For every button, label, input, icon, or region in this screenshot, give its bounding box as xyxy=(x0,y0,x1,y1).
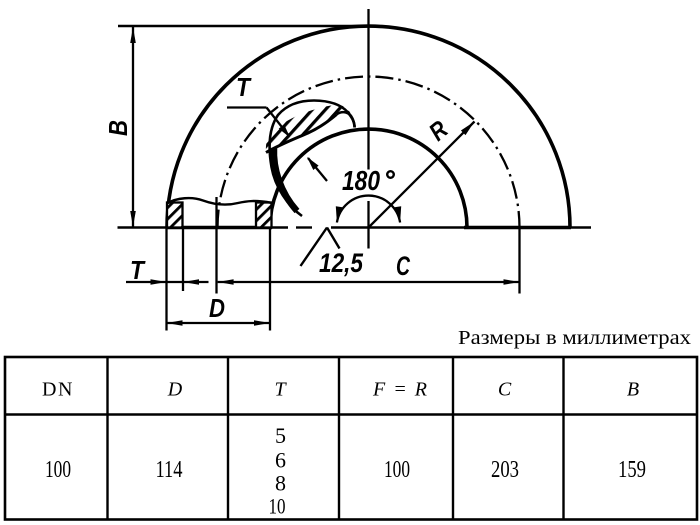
svg-text:100: 100 xyxy=(384,457,410,483)
svg-text:F = R: F = R xyxy=(372,379,427,401)
svg-text:D: D xyxy=(209,293,225,323)
svg-text:B: B xyxy=(627,379,639,401)
svg-text:6: 6 xyxy=(275,448,286,473)
svg-text:C: C xyxy=(498,379,512,401)
svg-text:8: 8 xyxy=(275,471,286,496)
svg-text:159: 159 xyxy=(618,457,646,483)
svg-text:D: D xyxy=(167,379,183,401)
svg-text:5: 5 xyxy=(275,423,286,448)
svg-text:10: 10 xyxy=(269,494,286,519)
svg-text:T: T xyxy=(274,379,287,401)
svg-text:203: 203 xyxy=(491,457,519,483)
svg-text:100: 100 xyxy=(45,457,71,483)
svg-text:180: 180 xyxy=(342,165,380,196)
svg-text:B: B xyxy=(103,120,133,136)
svg-text:12,5: 12,5 xyxy=(319,248,364,278)
svg-text:T: T xyxy=(236,72,252,102)
svg-text:T: T xyxy=(130,255,146,285)
svg-text:DN: DN xyxy=(42,379,74,401)
svg-text:C: C xyxy=(396,251,410,281)
svg-text:114: 114 xyxy=(156,457,183,483)
svg-text:Размеры в миллиметрах: Размеры в миллиметрах xyxy=(458,328,691,349)
